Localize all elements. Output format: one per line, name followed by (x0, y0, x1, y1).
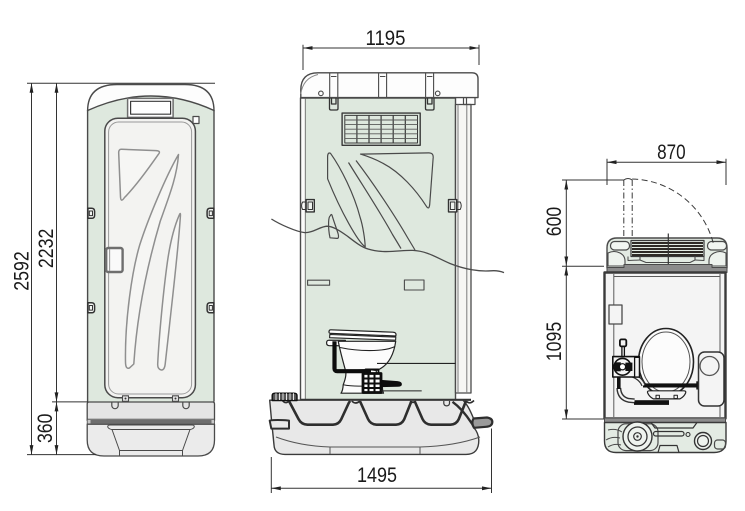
svg-text:870: 870 (657, 140, 686, 164)
svg-text:1495: 1495 (357, 463, 397, 487)
svg-text:360: 360 (33, 414, 57, 444)
svg-text:600: 600 (542, 207, 566, 237)
svg-text:2592: 2592 (9, 251, 33, 291)
svg-text:1195: 1195 (366, 26, 406, 50)
svg-text:1095: 1095 (542, 322, 566, 362)
svg-text:2232: 2232 (34, 229, 58, 269)
